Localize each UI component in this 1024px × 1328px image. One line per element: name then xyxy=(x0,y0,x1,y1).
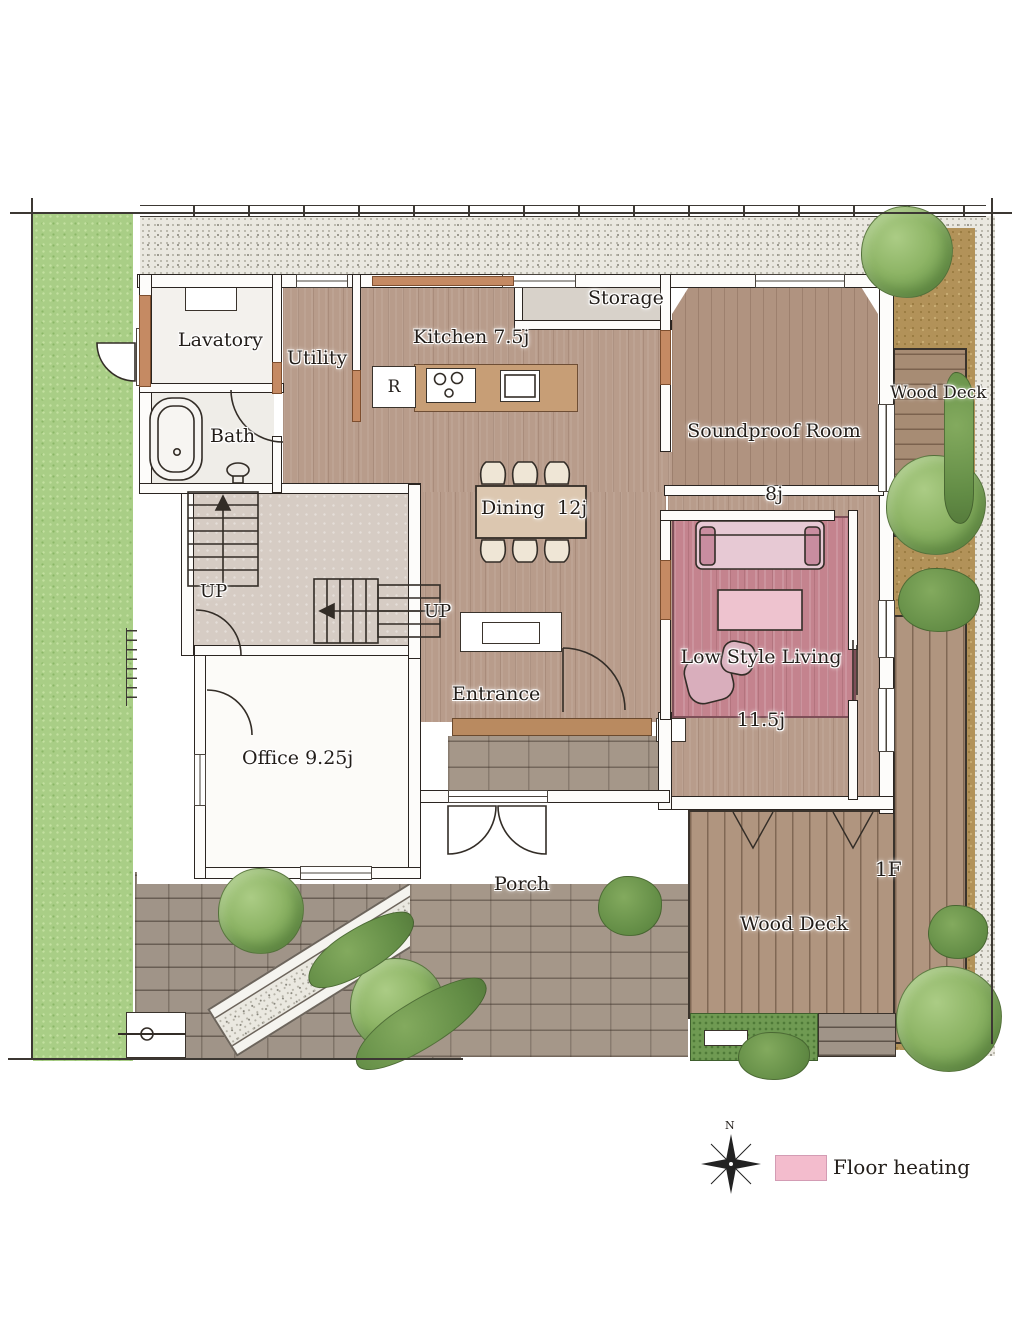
wall-bath-east-lower xyxy=(272,436,282,493)
floor-heating-swatch xyxy=(775,1155,827,1181)
garden-bench xyxy=(704,1030,748,1046)
boundary-west xyxy=(31,198,33,1060)
gravel-strip-north xyxy=(140,216,986,278)
wall-utility-divider xyxy=(352,274,361,372)
label-office: Office 9.25j xyxy=(242,748,353,769)
fence-north xyxy=(140,205,986,217)
sink xyxy=(500,370,540,402)
wall-hall-office-divider xyxy=(194,645,421,656)
label-dining: Dining 12j xyxy=(481,498,587,519)
window-living-east xyxy=(878,600,895,658)
label-living-line2: 11.5j xyxy=(662,710,860,731)
label-up-west: UP xyxy=(200,582,227,602)
genkan-step xyxy=(452,718,652,736)
label-living-line1: Low Style Living xyxy=(662,647,860,668)
window-soundproof-north xyxy=(755,274,845,288)
refrigerator-label: R xyxy=(388,377,401,397)
label-up-center: UP xyxy=(424,602,451,622)
wall-east-office xyxy=(408,655,421,879)
boundary-north xyxy=(10,212,1012,214)
wall-south-living xyxy=(660,796,894,810)
label-floor-1f: 1F xyxy=(875,858,902,880)
label-lavatory: Lavatory xyxy=(178,330,263,351)
label-entrance: Entrance xyxy=(452,684,540,705)
label-bath: Bath xyxy=(210,426,255,447)
tree xyxy=(218,868,304,954)
shoe-cabinet-inner xyxy=(482,622,540,644)
label-soundproof-line1: Soundproof Room xyxy=(668,421,880,442)
door-entrance-front xyxy=(448,790,548,803)
window-utility-north xyxy=(296,274,348,288)
stove xyxy=(426,368,476,403)
shrub xyxy=(898,568,980,632)
label-wood-deck-south: Wood Deck xyxy=(740,914,848,935)
floor-stair-hall xyxy=(185,492,411,648)
window-office-south xyxy=(300,866,372,880)
label-soundproof-line2: 8j xyxy=(668,484,880,505)
accent-wall-utility xyxy=(352,370,361,422)
accent-wall-lavatory-west xyxy=(139,295,151,387)
tree xyxy=(896,966,1002,1072)
wall-storage-south xyxy=(514,320,672,330)
accent-wall-bath-east xyxy=(272,362,282,394)
legend-floor-heating-label: Floor heating xyxy=(833,1156,970,1178)
boundary-east xyxy=(991,198,993,1044)
tree xyxy=(861,206,953,298)
shrub xyxy=(598,876,662,936)
accent-wall-living-west-a xyxy=(660,330,671,385)
compass-icon xyxy=(701,1134,761,1194)
shrub xyxy=(738,1032,810,1080)
boundary-south xyxy=(8,1058,463,1060)
wall-lavatory-bath-divider xyxy=(139,383,284,393)
label-low-style-living: Low Style Living 11.5j xyxy=(662,604,860,774)
compass-north-label: N xyxy=(725,1120,735,1132)
deck-steps-south xyxy=(818,1013,896,1057)
refrigerator: R xyxy=(372,366,416,408)
label-storage: Storage xyxy=(588,288,664,309)
floor-plan-canvas: R xyxy=(0,0,1024,1328)
label-utility: Utility xyxy=(287,348,347,369)
garden-gate xyxy=(126,1012,186,1058)
wall-hall-east xyxy=(408,484,421,659)
floor-genkan xyxy=(448,736,668,794)
accent-wall-kitchen-north xyxy=(372,276,514,286)
door-office-west xyxy=(194,754,206,806)
label-wood-deck-east: Wood Deck xyxy=(890,384,987,403)
shrub xyxy=(928,905,988,959)
label-kitchen: Kitchen 7.5j xyxy=(413,327,529,348)
wall-west-hall xyxy=(181,484,194,656)
lavatory-closet xyxy=(185,287,237,311)
door-living-deck xyxy=(878,688,895,752)
lawn-strip-west xyxy=(33,213,133,1061)
label-soundproof-room: Soundproof Room 8j xyxy=(668,378,880,548)
label-porch: Porch xyxy=(494,874,549,895)
